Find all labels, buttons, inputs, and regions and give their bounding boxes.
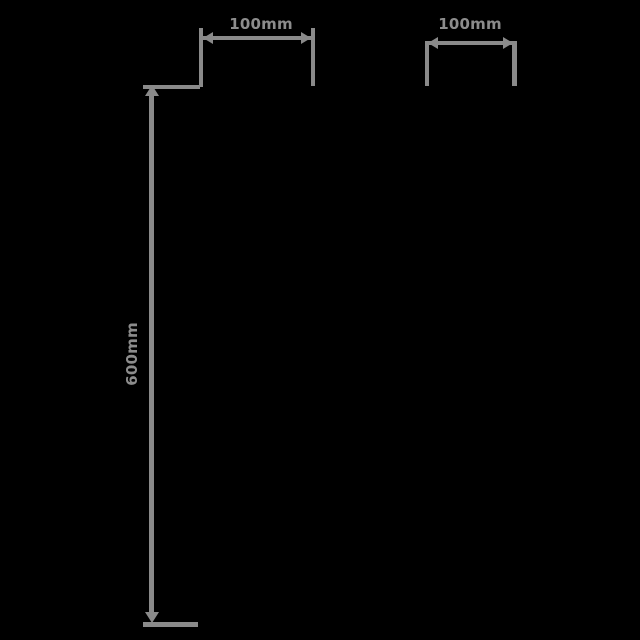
height-top-extension-line	[143, 85, 200, 89]
height-bottom-extension-line	[143, 622, 198, 627]
dimension-diagram: 600mm 100mm 100mm	[0, 0, 640, 640]
height-dimension-label: 600mm	[123, 322, 141, 386]
arrow-right-icon	[503, 37, 513, 49]
width-left-right-extension-line	[311, 28, 315, 86]
height-dimension-line	[149, 90, 154, 617]
arrow-left-icon	[203, 32, 213, 44]
arrow-left-icon	[428, 37, 438, 49]
width-left-dimension-line	[200, 36, 314, 40]
arrow-right-icon	[301, 32, 311, 44]
width-right-dimension-label: 100mm	[438, 15, 502, 33]
width-left-dimension-label: 100mm	[229, 15, 293, 33]
